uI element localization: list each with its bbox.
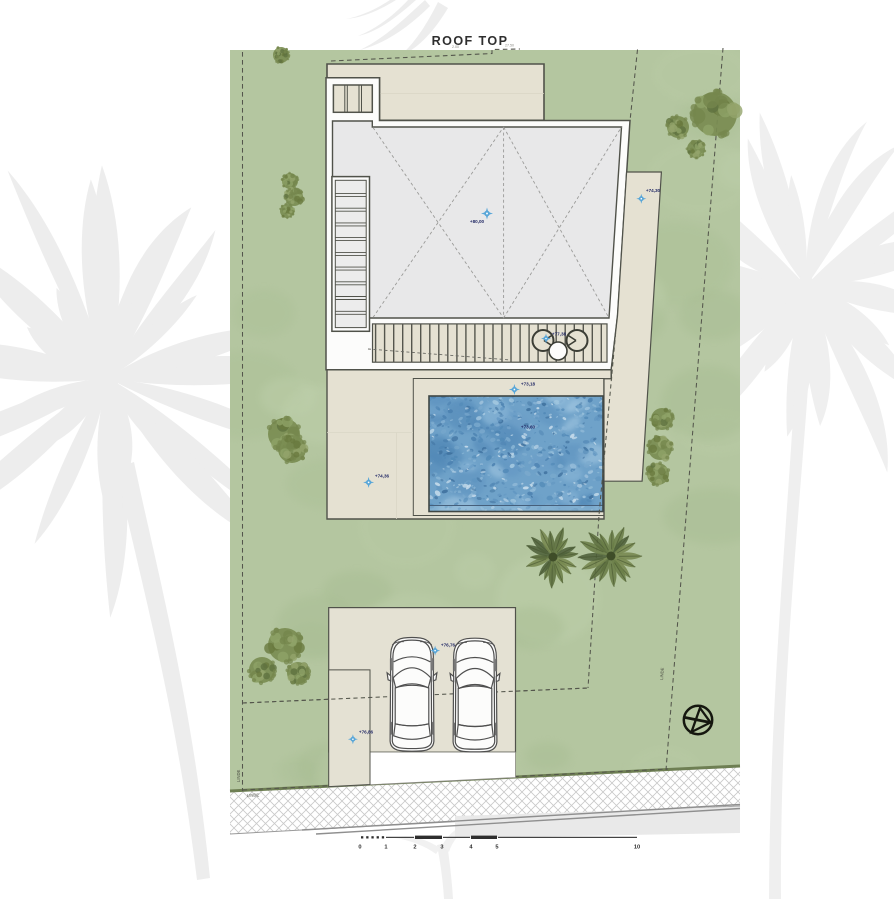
svg-text:+77,38: +77,38 — [552, 332, 567, 337]
svg-text:5: 5 — [495, 845, 498, 851]
svg-text:3: 3 — [440, 845, 443, 851]
svg-text:+76,86: +76,86 — [359, 730, 374, 735]
svg-text:+74,30: +74,30 — [646, 188, 661, 193]
svg-text:LINDE: LINDE — [247, 792, 260, 798]
svg-text:LINDE: LINDE — [659, 667, 665, 680]
svg-text:+76,76: +76,76 — [441, 643, 456, 648]
svg-text:LINDE: LINDE — [236, 769, 241, 782]
svg-text:10: 10 — [634, 845, 640, 851]
svg-text:2: 2 — [413, 845, 416, 851]
svg-text:ROOF TOP: ROOF TOP — [432, 34, 509, 48]
svg-text:1: 1 — [384, 845, 387, 851]
svg-text:+73,60: +73,60 — [521, 425, 536, 430]
svg-text:+74,36: +74,36 — [375, 474, 390, 479]
svg-text:+80,00: +80,00 — [470, 219, 485, 224]
svg-text:0: 0 — [358, 845, 361, 851]
svg-text:+73,18: +73,18 — [521, 382, 536, 387]
